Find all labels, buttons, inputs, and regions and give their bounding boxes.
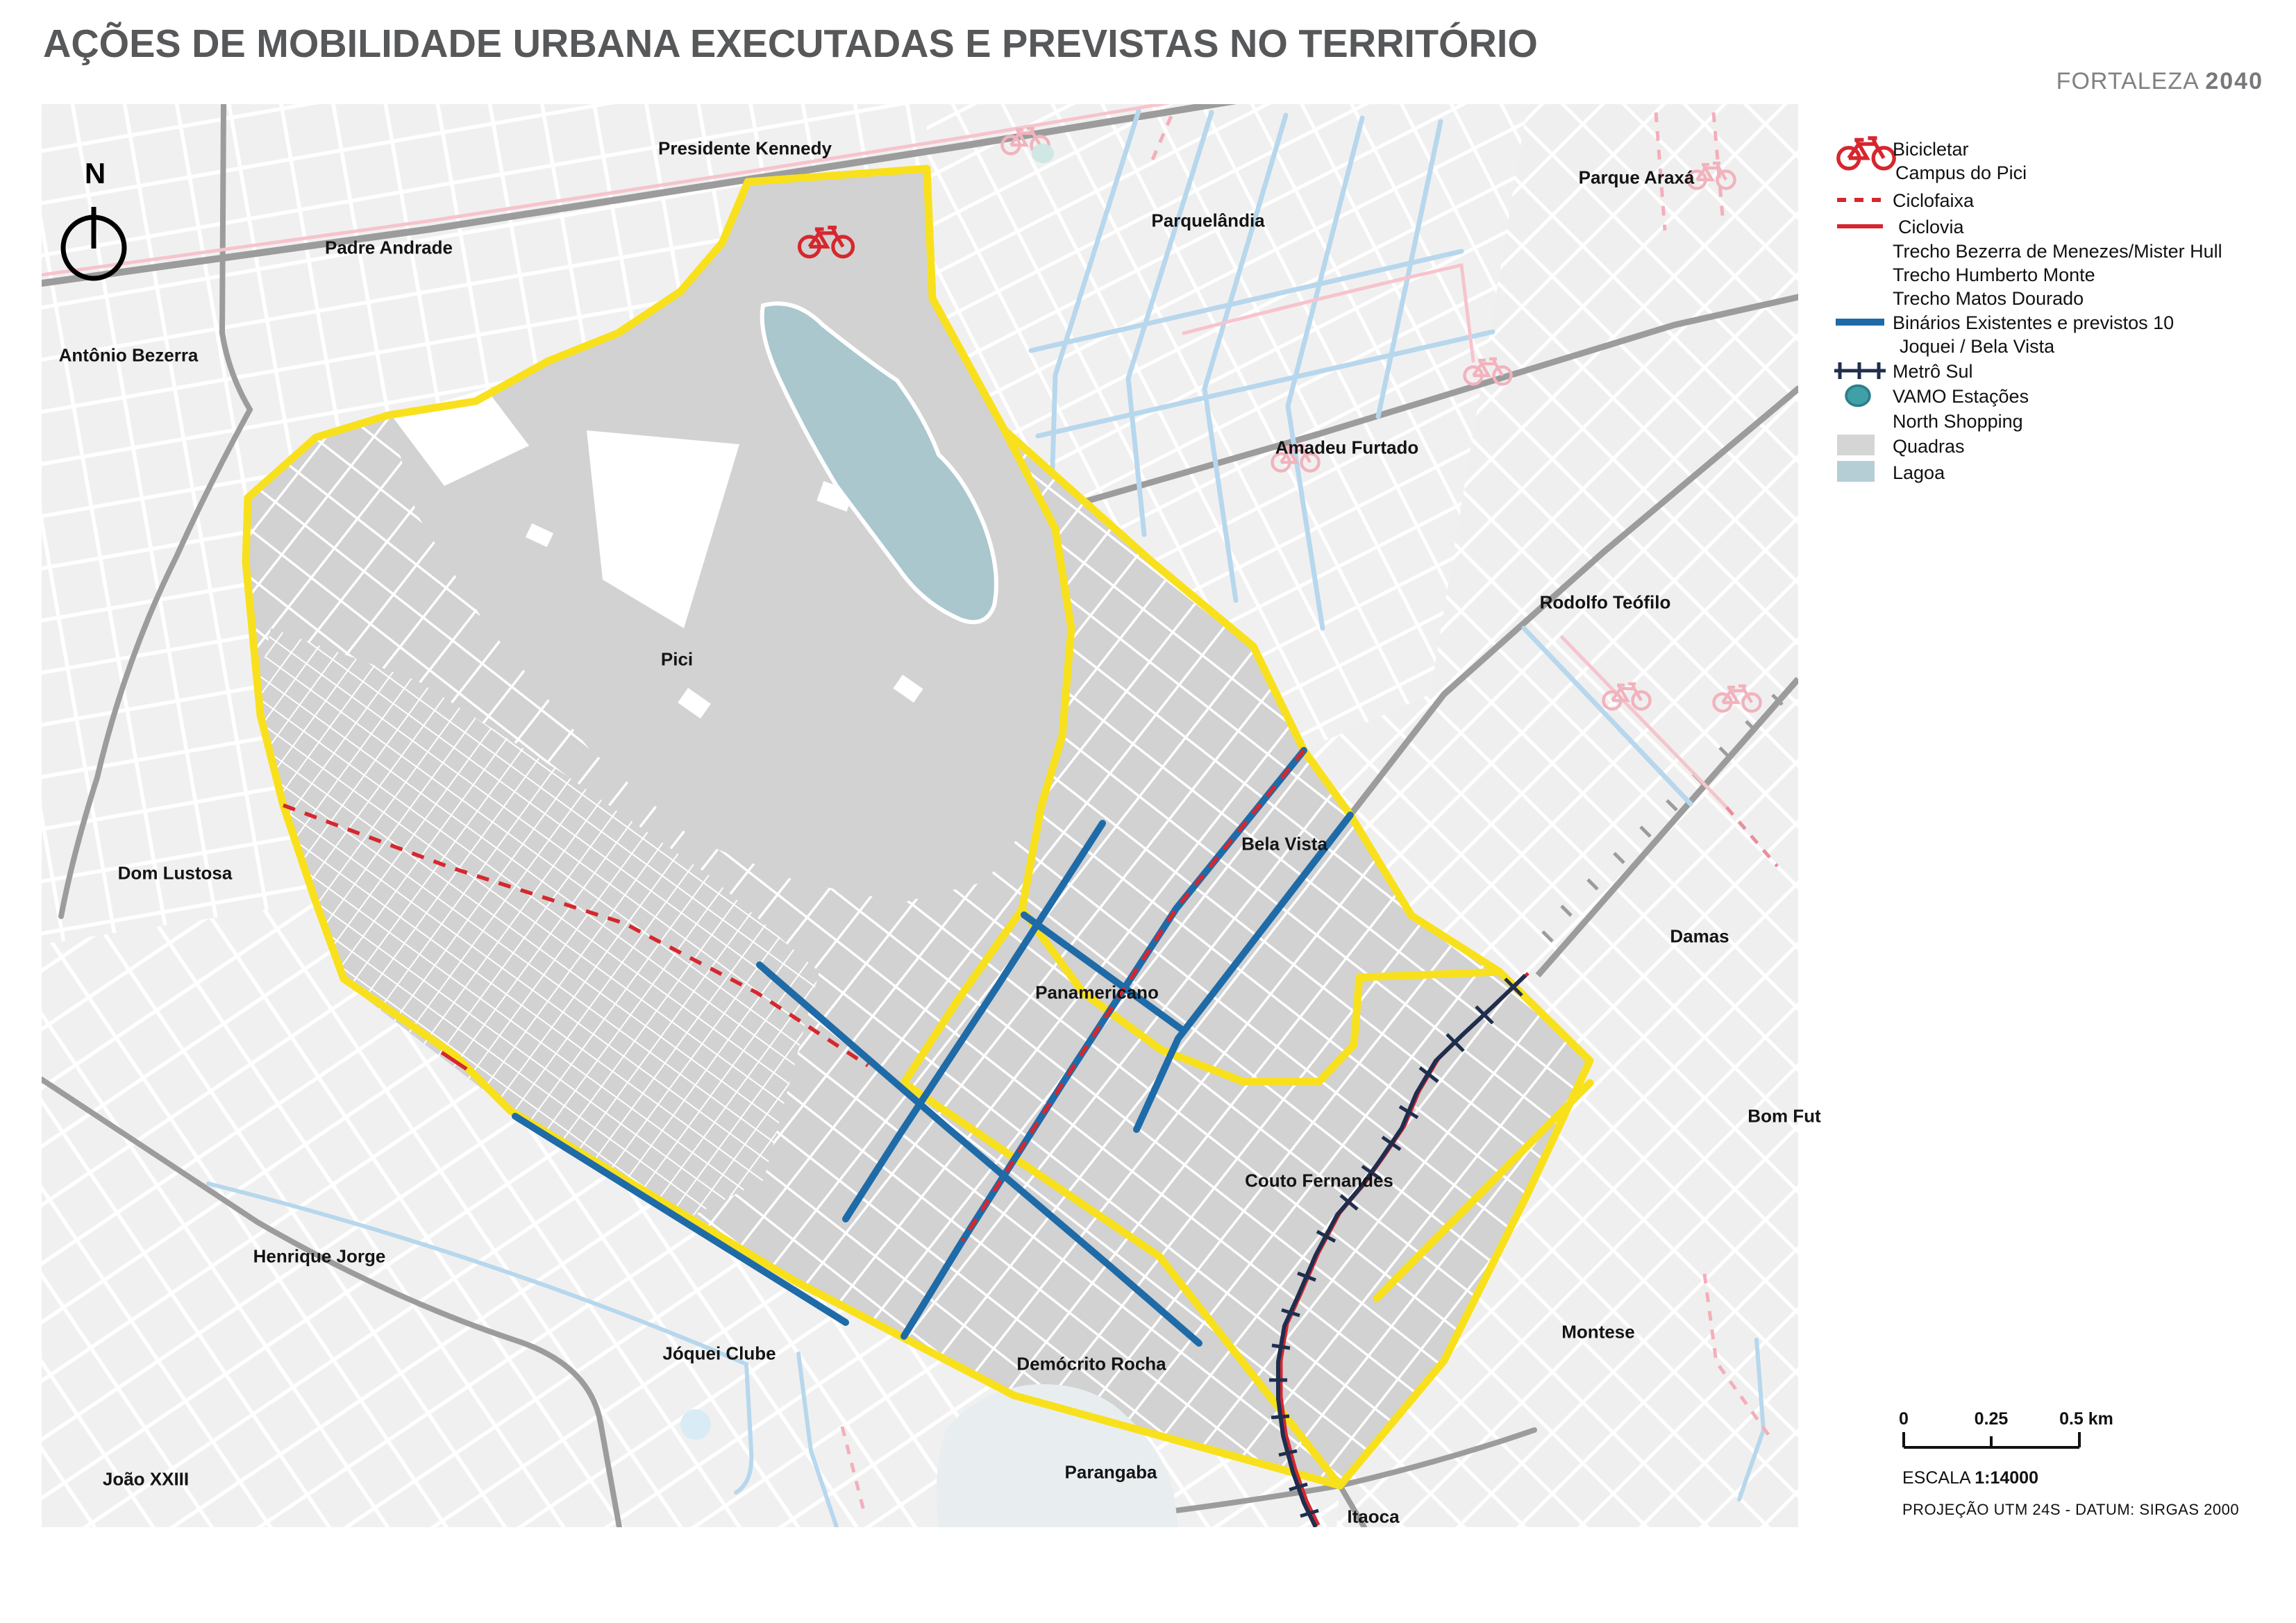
- map-label-bela-vista: Bela Vista: [1241, 834, 1327, 855]
- scale-tick-025: 0.25: [1975, 1409, 2009, 1429]
- scale-tick-0: 0: [1899, 1409, 1909, 1429]
- legend-bicycle-icon: [1838, 138, 1894, 169]
- legend-item-metro-sul: Metrô Sul: [1893, 361, 1973, 382]
- escala-value: 1:14000: [1975, 1468, 2038, 1488]
- page-title: AÇÕES DE MOBILIDADE URBANA EXECUTADAS E …: [43, 21, 1538, 67]
- legend-vamo-swatch: [1846, 386, 1870, 406]
- page: { "title": "AÇÕES DE MOBILIDADE URBANA E…: [0, 0, 2296, 1623]
- map-label-henrique-jorge: Henrique Jorge: [253, 1246, 386, 1268]
- legend-item-north-shopping: North Shopping: [1893, 411, 2023, 432]
- scale-bar: [1904, 1432, 2079, 1447]
- scale-text: ESCALA 1:14000: [1902, 1468, 2038, 1488]
- legend-item-binarios: Binários Existentes e previstos 10: [1893, 312, 2174, 334]
- map-label-joquei-clube: Jóquei Clube: [662, 1343, 776, 1365]
- map-area: [42, 15, 1798, 1527]
- north-label: N: [85, 157, 106, 190]
- legend-item-lagoa: Lagoa: [1893, 462, 1945, 484]
- map-label-panamericano: Panamericano: [1035, 982, 1159, 1004]
- legend-item-bicicletar: Bicicletar: [1893, 139, 1969, 160]
- brand-logo: FORTALEZA 2040: [2006, 68, 2263, 95]
- legend-swatches: [1834, 138, 1894, 482]
- legend-lagoa-swatch: [1837, 461, 1875, 482]
- map-label-pici: Pici: [661, 649, 693, 671]
- map-label-padre-andrade: Padre Andrade: [325, 237, 453, 259]
- vamo-station-north-shopping: [1032, 144, 1054, 163]
- map-label-amadeu-furtado: Amadeu Furtado: [1275, 437, 1419, 459]
- legend-item-trecho-bezerra: Trecho Bezerra de Menezes/Mister Hull: [1893, 241, 2222, 262]
- legend-item-quadras: Quadras: [1893, 436, 1965, 457]
- legend-quadras-swatch: [1837, 435, 1875, 455]
- map-label-damas: Damas: [1670, 926, 1729, 948]
- map-label-parangaba: Parangaba: [1065, 1462, 1157, 1483]
- map-label-itaoca: Itaoca: [1347, 1506, 1399, 1528]
- legend-item-vamo: VAMO Estações: [1893, 386, 2029, 407]
- scale-tick-05km: 0.5 km: [2059, 1409, 2113, 1429]
- legend-item-joquei-bela-vista: Joquei / Bela Vista: [1900, 336, 2054, 358]
- map-label-montese: Montese: [1561, 1322, 1634, 1343]
- legend-item-campus-pici: Campus do Pici: [1895, 162, 2027, 184]
- brand-city: FORTALEZA: [2056, 68, 2198, 94]
- legend-item-ciclofaixa: Ciclofaixa: [1893, 190, 1974, 212]
- legend-item-ciclovia: Ciclovia: [1898, 217, 1964, 238]
- map-label-dom-lustosa: Dom Lustosa: [118, 863, 233, 884]
- legend-metro-swatch: [1834, 362, 1886, 379]
- projection-text: PROJEÇÃO UTM 24S - DATUM: SIRGAS 2000: [1902, 1501, 2239, 1519]
- brand-year: 2040: [2205, 68, 2263, 94]
- map-label-antonio-bezerra: Antônio Bezerra: [59, 345, 199, 367]
- escala-label: ESCALA: [1902, 1468, 1970, 1488]
- pond-joquei: [680, 1409, 711, 1440]
- map-label-presidente-kennedy: Presidente Kennedy: [658, 138, 832, 160]
- map-label-bom-futuro: Bom Fut: [1748, 1106, 1820, 1127]
- map-label-parque-araxa: Parque Araxá: [1579, 167, 1695, 189]
- legend-item-trecho-matos: Trecho Matos Dourado: [1893, 288, 2084, 310]
- map-label-democrito-rocha: Demócrito Rocha: [1016, 1354, 1166, 1375]
- map-label-rodolfo-teofilo: Rodolfo Teófilo: [1540, 592, 1671, 614]
- map-label-joao-xxiii: João XXIII: [103, 1469, 189, 1490]
- map-label-couto-fernandes: Couto Fernandes: [1245, 1170, 1393, 1192]
- legend-item-trecho-humberto: Trecho Humberto Monte: [1893, 264, 2095, 286]
- map-label-parquelandia: Parquelândia: [1151, 210, 1264, 232]
